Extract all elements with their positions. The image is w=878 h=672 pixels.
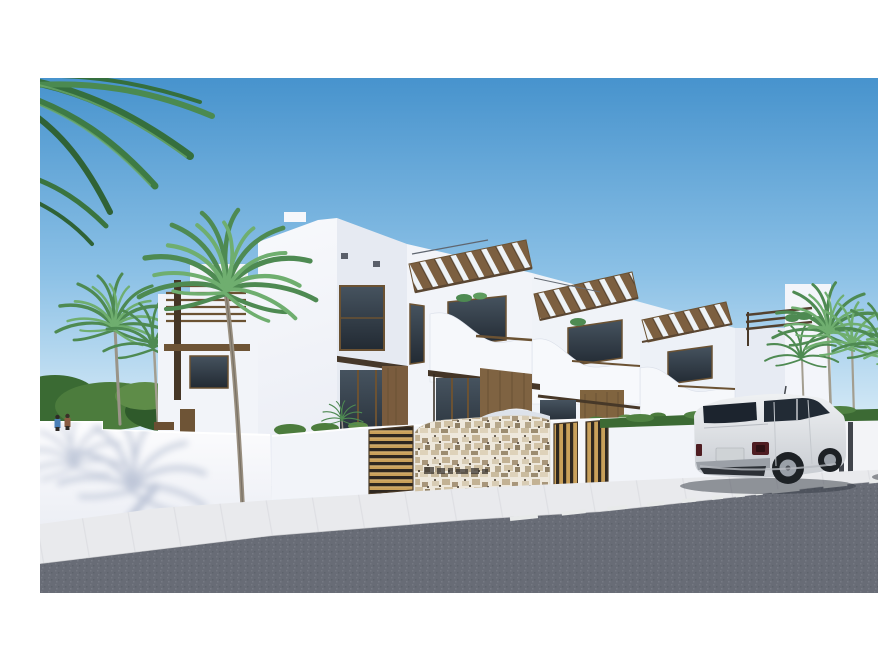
top-white-band bbox=[40, 16, 878, 78]
narrow-window bbox=[410, 304, 424, 364]
annex-pergola-post bbox=[174, 280, 181, 400]
wall-post bbox=[848, 422, 853, 472]
annex-beam bbox=[164, 344, 250, 351]
balcony-plant bbox=[570, 318, 586, 326]
balcony-plant bbox=[456, 294, 472, 302]
suv-taillight bbox=[696, 444, 702, 456]
chimney bbox=[284, 212, 306, 222]
annex-window bbox=[190, 356, 228, 388]
upper-window bbox=[668, 346, 712, 384]
facade-vent bbox=[373, 261, 380, 267]
wood-slat-gate bbox=[586, 420, 608, 484]
photo-area bbox=[40, 76, 878, 593]
annex-wood-door bbox=[180, 409, 195, 433]
wall-wood-gate bbox=[154, 422, 174, 430]
wood-slat-gate bbox=[369, 426, 413, 494]
suv-license-plate bbox=[716, 448, 744, 461]
wood-slat-gate bbox=[554, 422, 578, 486]
car-shadow bbox=[680, 478, 856, 494]
fence-pier bbox=[578, 420, 586, 484]
facade-vent bbox=[341, 253, 348, 259]
bottom-white-band bbox=[40, 593, 878, 656]
architectural-render-photo bbox=[40, 16, 878, 656]
upper-window bbox=[568, 320, 622, 366]
stone-sign-wall bbox=[415, 416, 550, 497]
